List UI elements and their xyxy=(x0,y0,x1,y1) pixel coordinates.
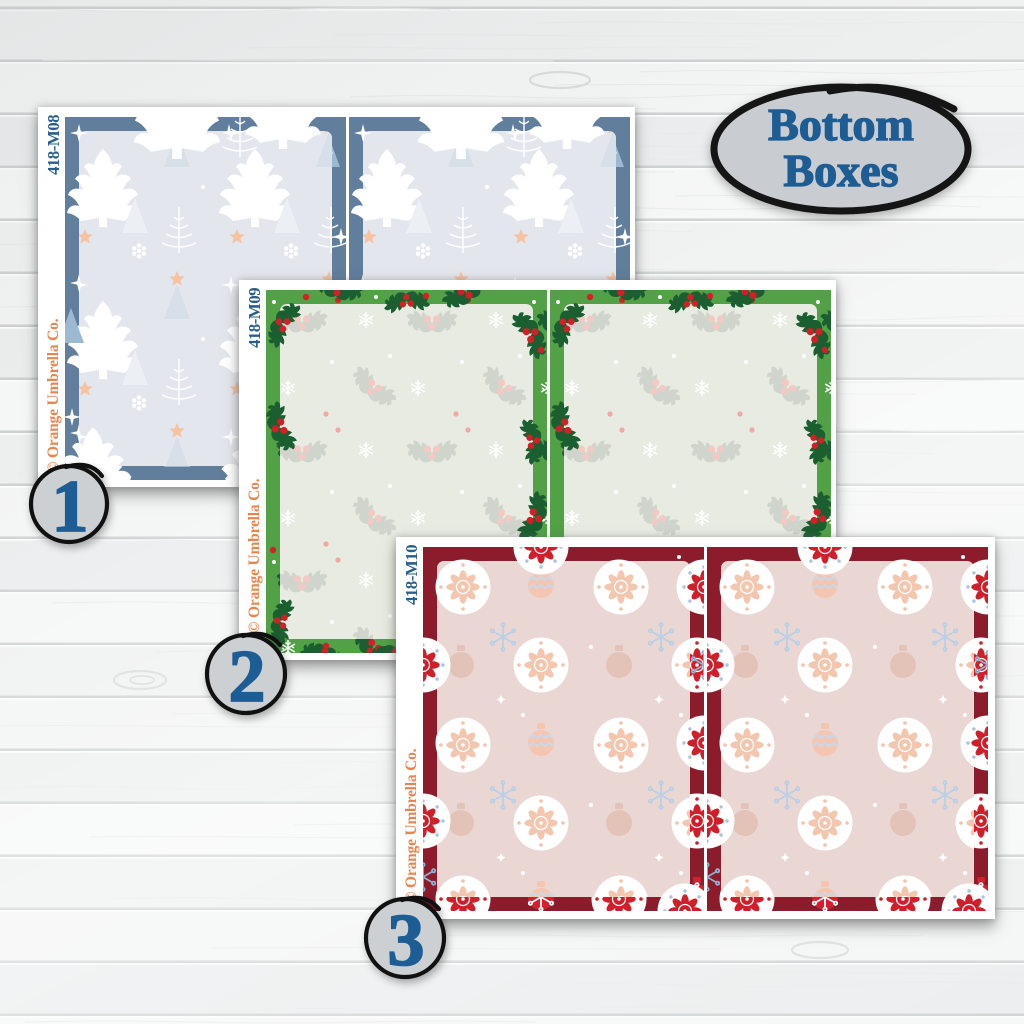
svg-text:1: 1 xyxy=(52,466,89,548)
svg-text:Boxes: Boxes xyxy=(784,145,899,196)
svg-text:3: 3 xyxy=(388,900,425,982)
svg-text:Bottom: Bottom xyxy=(768,99,914,150)
svg-text:2: 2 xyxy=(229,636,266,718)
